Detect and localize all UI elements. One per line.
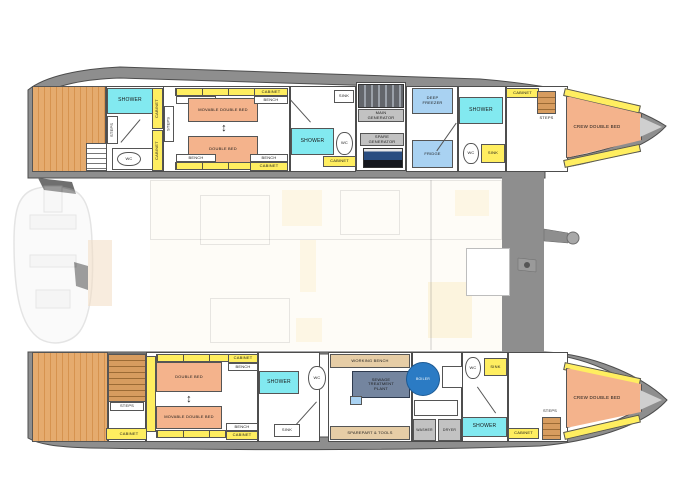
catamaran-deck-plan: { "rooms": { "shower": "SHOWER", "wc": "… bbox=[0, 0, 698, 504]
bed-move-arrow-icon: ↕ bbox=[219, 121, 229, 136]
main-generator-label: MAIN GENERATOR bbox=[358, 109, 404, 122]
swim-platform-aft-stbd bbox=[32, 352, 108, 442]
steps-fwd-port bbox=[537, 91, 556, 114]
shower-mid-port: SHOWER bbox=[291, 128, 334, 155]
main-generator-unit bbox=[358, 84, 404, 108]
sink-fwd-stbd: SINK bbox=[484, 358, 507, 376]
steps-label-stbd: STEPS bbox=[110, 402, 144, 411]
dryer: DRYER bbox=[438, 419, 461, 441]
cabinet-label: CABINET bbox=[254, 88, 288, 96]
movable-double-bed-stbd: MOVABLE DOUBLE BED bbox=[156, 406, 222, 429]
dinghy-icon bbox=[14, 186, 93, 343]
equipment-box bbox=[414, 400, 458, 416]
steps-label-fwd-port: STEPS bbox=[533, 114, 560, 122]
shower-aft-stbd: SHOWER bbox=[259, 371, 299, 394]
mini-steps-aft-port bbox=[86, 143, 107, 171]
steps-label-cabin-port: STEPS bbox=[164, 106, 174, 142]
shower-fwd-stbd: SHOWER bbox=[462, 417, 507, 437]
cabinet-label: CABINET bbox=[506, 88, 539, 98]
movable-double-bed-port: MOVABLE DOUBLE BED bbox=[188, 98, 258, 122]
deep-freezer: DEEP FREEZER bbox=[412, 88, 453, 114]
boiler: BOILER bbox=[406, 362, 440, 396]
ghost-furniture bbox=[300, 240, 316, 292]
steps-label-aft-port: STEPS bbox=[107, 116, 118, 144]
washer: WASHER bbox=[413, 419, 436, 441]
bench-label: BENCH bbox=[176, 154, 216, 162]
bench-label: BENCH bbox=[254, 96, 288, 104]
steps-label-fwd-stbd: STEPS bbox=[536, 407, 564, 415]
ghost-furniture bbox=[296, 318, 322, 342]
cabinet-strip-vertical bbox=[146, 356, 156, 432]
ghost-wall bbox=[430, 180, 432, 350]
double-bed-stbd: DOUBLE BED bbox=[156, 362, 222, 392]
bowsprit-ball-icon bbox=[567, 232, 579, 244]
cabinet-strip-top bbox=[156, 354, 230, 362]
cabinet-label: CABINET bbox=[508, 428, 539, 439]
shower-fwd-port: SHOWER bbox=[459, 97, 503, 124]
wc-fwd-stbd: WC bbox=[465, 357, 481, 379]
cabinet-label: CABINET bbox=[250, 162, 288, 171]
ghost-wall bbox=[210, 298, 290, 343]
fridge: FRIDGE bbox=[412, 140, 453, 168]
cabinet-label: CABINET bbox=[228, 354, 258, 363]
wc-fwd-port: WC bbox=[463, 143, 479, 164]
sewage-treatment-plant: SEWAGE TREATMENT PLANT bbox=[352, 371, 410, 398]
sink-mid-port: SINK bbox=[334, 90, 354, 103]
sparepart-tools: SPAREPART & TOOLS bbox=[330, 426, 410, 440]
staircase-stbd bbox=[108, 354, 146, 402]
sewage-pipe-icon bbox=[350, 396, 362, 405]
bench-label: BENCH bbox=[250, 154, 288, 162]
shower-aft-port: SHOWER bbox=[107, 88, 153, 114]
working-bench: WORKING BENCH bbox=[330, 354, 410, 368]
crossbeam-notch bbox=[466, 248, 510, 296]
spare-generator-unit bbox=[363, 148, 403, 168]
sink-fwd-port: SINK bbox=[481, 144, 505, 163]
wc-mid-port: WC bbox=[336, 132, 353, 155]
steps-fwd-stbd bbox=[542, 417, 561, 440]
ghost-column bbox=[88, 240, 112, 306]
bench-label: BENCH bbox=[226, 423, 258, 431]
wc-aft-port: WC bbox=[112, 148, 154, 170]
cabinet-label: CABINET bbox=[323, 156, 356, 167]
bowsprit-icon bbox=[544, 229, 568, 243]
sink-aft-stbd: SINK bbox=[274, 424, 300, 437]
cabinet-vertical-port-1: CABINET bbox=[152, 88, 163, 129]
wc-aft-stbd: WC bbox=[308, 366, 326, 390]
spare-generator-label: SPARE GENERATOR bbox=[360, 133, 404, 146]
toilet-icon: WC bbox=[117, 152, 141, 166]
bench-label: BENCH bbox=[228, 363, 258, 371]
cabinet-label: CABINET bbox=[226, 431, 258, 440]
cleat-dot-icon bbox=[524, 262, 530, 268]
ghost-wall bbox=[150, 180, 502, 240]
cabinet-vertical-port-2: CABINET bbox=[152, 130, 163, 171]
bed-move-arrow-icon: ↕ bbox=[184, 392, 194, 406]
cabinet-strip-bottom bbox=[156, 430, 226, 438]
